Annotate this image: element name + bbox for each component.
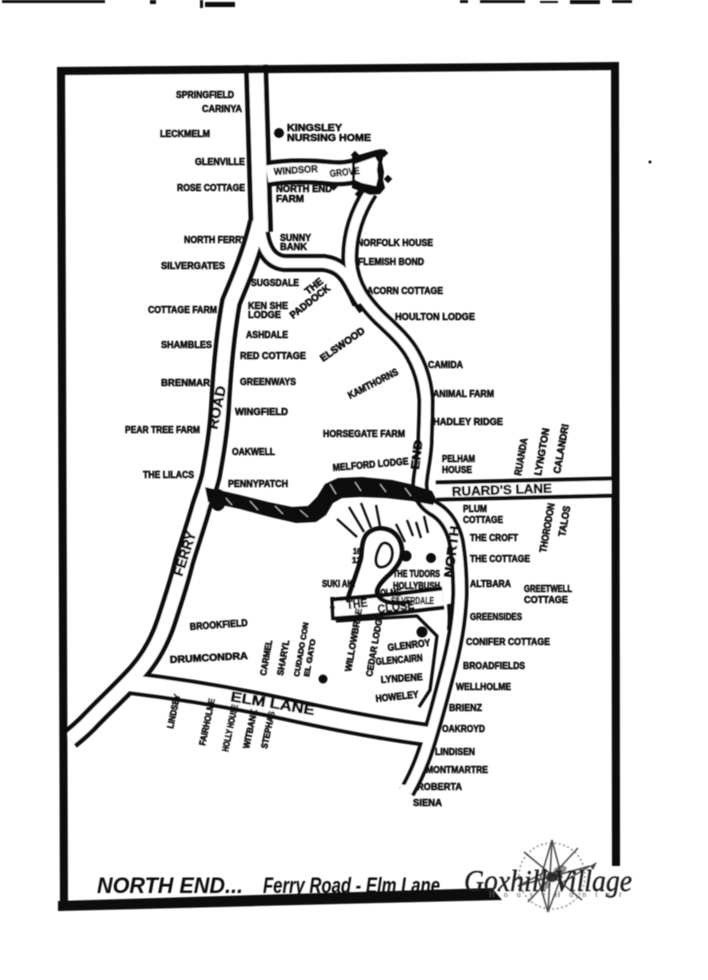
svg-text:PENNYPATCH: PENNYPATCH xyxy=(228,479,288,490)
svg-text:H o u s e H u n t e r: H o u s e H u n t e r xyxy=(489,890,625,899)
svg-text:16: 16 xyxy=(353,547,361,556)
svg-text:LECKMELM: LECKMELM xyxy=(160,129,210,140)
svg-text:FLEMISH BOND: FLEMISH BOND xyxy=(358,257,424,268)
svg-text:12: 12 xyxy=(352,556,362,565)
svg-text:ALTBARA: ALTBARA xyxy=(470,579,511,590)
svg-text:LINDISEN: LINDISEN xyxy=(435,747,475,758)
svg-text:MONTMARTRE: MONTMARTRE xyxy=(426,764,488,776)
svg-text:CARINYA: CARINYA xyxy=(202,104,242,115)
svg-text:NORTH END...: NORTH END... xyxy=(97,873,243,898)
svg-text:BROADFIELDS: BROADFIELDS xyxy=(463,661,525,672)
svg-text:7: 7 xyxy=(330,607,335,614)
svg-text:BRENMAR: BRENMAR xyxy=(161,378,211,389)
svg-text:SUGSDALE: SUGSDALE xyxy=(251,278,299,289)
svg-text:BRIENZ: BRIENZ xyxy=(449,703,482,714)
svg-text:FARM: FARM xyxy=(276,194,304,205)
svg-text:RED COTTAGE: RED COTTAGE xyxy=(240,351,306,362)
svg-text:SILVERGATES: SILVERGATES xyxy=(161,261,225,272)
svg-text:CONIFER COTTAGE: CONIFER COTTAGE xyxy=(466,637,550,648)
svg-text:BANK: BANK xyxy=(280,242,308,253)
svg-text:GLENVILLE: GLENVILLE xyxy=(195,157,245,168)
svg-text:ACORN COTTAGE: ACORN COTTAGE xyxy=(367,286,443,297)
svg-text:HORSEGATE FARM: HORSEGATE FARM xyxy=(323,429,405,440)
svg-text:PEAR TREE FARM: PEAR TREE FARM xyxy=(125,425,200,436)
svg-text:SHAMBLES: SHAMBLES xyxy=(161,340,212,351)
svg-text:PELHAM: PELHAM xyxy=(442,454,475,465)
svg-text:HOULTON LODGE: HOULTON LODGE xyxy=(395,312,475,323)
svg-text:GREENWAYS: GREENWAYS xyxy=(240,377,296,388)
svg-text:SUKI AKI: SUKI AKI xyxy=(322,579,355,590)
svg-text:NORFOLK HOUSE: NORFOLK HOUSE xyxy=(357,238,433,249)
svg-text:LODGE: LODGE xyxy=(248,310,281,321)
svg-text:NORTH FERRY: NORTH FERRY xyxy=(184,235,247,246)
svg-text:OAKROYD: OAKROYD xyxy=(442,724,485,735)
svg-text:Ferry Road - Elm Lane: Ferry Road - Elm Lane xyxy=(263,873,440,898)
svg-text:WINGFIELD: WINGFIELD xyxy=(235,407,288,418)
svg-text:PLUM: PLUM xyxy=(463,504,487,515)
svg-text:ROBERTA: ROBERTA xyxy=(417,781,462,793)
svg-text:THE CROFT: THE CROFT xyxy=(470,533,518,544)
svg-text:COTTAGE: COTTAGE xyxy=(524,595,568,606)
svg-text:THE TUDORS: THE TUDORS xyxy=(393,569,440,580)
svg-text:CAMIDA: CAMIDA xyxy=(428,360,463,371)
svg-text:ANIMAL FARM: ANIMAL FARM xyxy=(433,389,494,400)
svg-text:SIENA: SIENA xyxy=(413,798,442,809)
svg-text:COTTAGE: COTTAGE xyxy=(463,515,503,526)
svg-text:ROSE COTTAGE: ROSE COTTAGE xyxy=(177,183,245,194)
svg-text:OAKWELL: OAKWELL xyxy=(232,447,275,458)
svg-text:ASHDALE: ASHDALE xyxy=(246,330,288,341)
svg-text:SPRINGFIELD: SPRINGFIELD xyxy=(176,90,234,101)
svg-text:COTTAGE FARM: COTTAGE FARM xyxy=(148,305,217,316)
svg-text:HADLEY RIDGE: HADLEY RIDGE xyxy=(433,417,503,428)
svg-text:GREETWELL: GREETWELL xyxy=(524,584,572,595)
svg-text:THE COTTAGE: THE COTTAGE xyxy=(470,554,530,565)
svg-text:HOUSE: HOUSE xyxy=(442,465,472,476)
svg-text:THE LILACS: THE LILACS xyxy=(143,470,194,481)
svg-text:GREENSIDES: GREENSIDES xyxy=(470,612,522,623)
svg-text:WELLHOLME: WELLHOLME xyxy=(456,682,511,693)
svg-text:NURSING HOME: NURSING HOME xyxy=(287,133,371,144)
